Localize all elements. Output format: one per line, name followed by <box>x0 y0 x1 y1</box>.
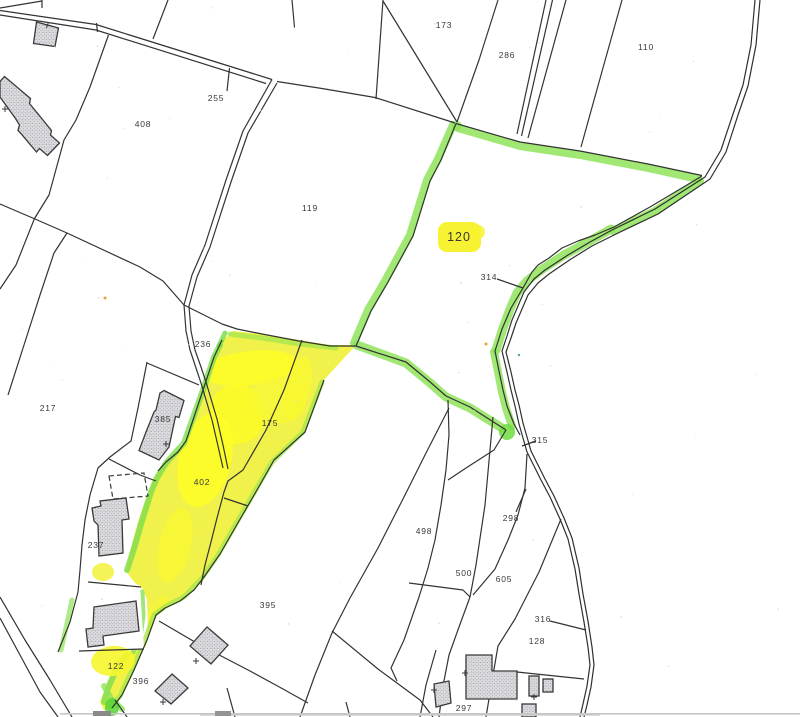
svg-text:500: 500 <box>456 568 473 578</box>
svg-text:110: 110 <box>638 42 654 52</box>
svg-text:286: 286 <box>499 50 516 60</box>
svg-text:255: 255 <box>208 93 225 103</box>
svg-text:217: 217 <box>40 403 57 413</box>
svg-text:237: 237 <box>88 540 105 550</box>
svg-text:173: 173 <box>436 20 453 30</box>
svg-text:315: 315 <box>532 435 549 445</box>
svg-text:119: 119 <box>302 203 318 213</box>
svg-text:297: 297 <box>456 703 473 713</box>
svg-text:408: 408 <box>135 119 152 129</box>
svg-text:175: 175 <box>262 418 279 428</box>
svg-text:122: 122 <box>108 661 125 671</box>
svg-text:236: 236 <box>195 339 212 349</box>
svg-text:128: 128 <box>529 636 546 646</box>
svg-text:498: 498 <box>416 526 433 536</box>
svg-text:316: 316 <box>535 614 552 624</box>
svg-text:298: 298 <box>503 513 520 523</box>
svg-text:385: 385 <box>155 414 172 424</box>
svg-text:314: 314 <box>481 272 498 282</box>
svg-text:402: 402 <box>194 477 211 487</box>
svg-text:605: 605 <box>496 574 513 584</box>
svg-text:395: 395 <box>260 600 277 610</box>
svg-text:120: 120 <box>447 230 471 244</box>
svg-text:396: 396 <box>133 676 150 686</box>
